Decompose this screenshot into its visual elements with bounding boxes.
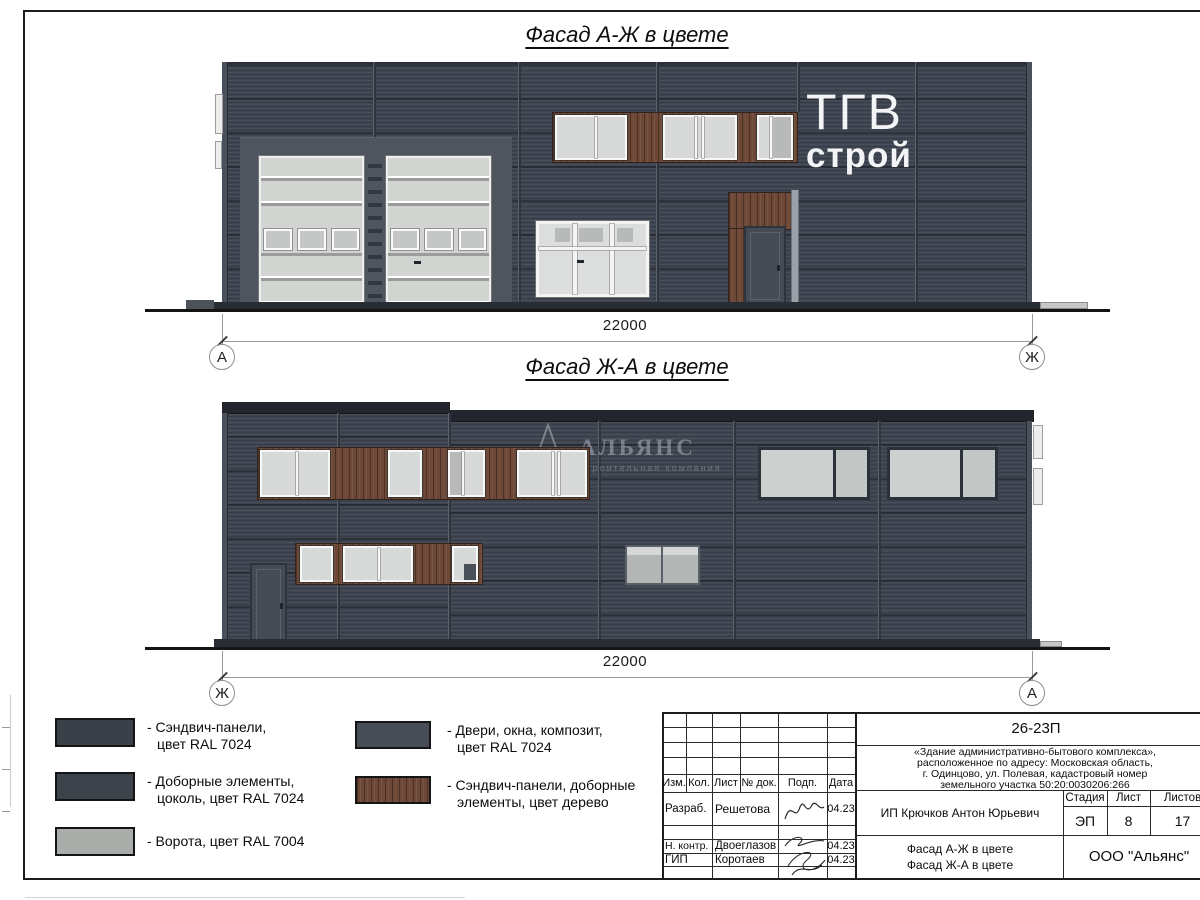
gate-window-row xyxy=(261,226,362,253)
door-panel xyxy=(256,569,281,640)
ramp-left xyxy=(186,300,214,309)
row-date-1: 04.23 xyxy=(827,792,855,825)
band-window-vent xyxy=(452,546,478,582)
titleblock-line xyxy=(662,742,855,743)
entrance-door xyxy=(744,226,786,306)
small-pane xyxy=(836,450,867,497)
pane-divider xyxy=(378,548,380,580)
facade-2-title: Фасад Ж-А в цвете xyxy=(222,354,1032,380)
row-date-3: 04.23 xyxy=(827,853,855,866)
legend-text: цвет RAL 7024 xyxy=(447,739,603,756)
band-window-3 xyxy=(757,115,793,160)
glazed-entrance xyxy=(535,220,650,298)
project-description: «Здание административно-бытового комплек… xyxy=(860,747,1200,791)
company-name: ООО "Альянс" xyxy=(1063,835,1200,878)
facade-2-plinth xyxy=(214,639,1040,647)
legend-text: - Сэндвич-панели, доборные xyxy=(447,777,635,794)
margin-ruler-tick xyxy=(2,727,10,728)
col-header-podp: Подп. xyxy=(778,774,827,792)
door-wood-header xyxy=(728,192,793,230)
band-window-2 xyxy=(663,115,737,160)
company-sign: ТГВ строй xyxy=(806,86,946,174)
legend-swatch-doors xyxy=(355,721,431,749)
legend-swatch-sandwich xyxy=(55,718,135,747)
legend-text: - Сэндвич-панели, xyxy=(147,719,266,736)
legend-text: элементы, цвет дерево xyxy=(447,794,635,811)
top-pane xyxy=(579,228,603,242)
legend-label-trim: - Доборные элементы, цоколь, цвет RAL 70… xyxy=(147,773,304,807)
legend-text: - Ворота, цвет RAL 7004 xyxy=(147,833,304,850)
parapet-strip xyxy=(222,402,450,413)
signature-icon xyxy=(779,832,829,878)
col-header-data: Дата xyxy=(827,774,855,792)
doc-title-line: Фасад А-Ж в цвете xyxy=(907,841,1013,857)
titleblock-line xyxy=(662,825,855,826)
ramp-right xyxy=(1040,302,1088,309)
gate-window xyxy=(332,229,359,250)
door-panel xyxy=(750,232,780,300)
dimension-line-1 xyxy=(222,341,1032,342)
legend-swatch-trim xyxy=(55,772,135,801)
row-name-korotaev: Коротаев xyxy=(712,853,778,866)
frame-bottom xyxy=(23,878,1200,880)
sheet-number: 8 xyxy=(1107,806,1150,835)
wall-fixture xyxy=(215,141,222,169)
band-window xyxy=(448,450,485,497)
sectional-gate-1 xyxy=(258,155,365,305)
project-code: 26-23П xyxy=(857,712,1200,745)
band-window xyxy=(300,546,333,582)
pane-divider xyxy=(296,452,298,495)
gate-window xyxy=(298,229,326,250)
band-window xyxy=(517,450,587,497)
dimension-value-2: 22000 xyxy=(560,653,690,670)
upper-window-right-2 xyxy=(887,447,998,500)
band-window xyxy=(343,546,413,582)
col-header-kol: Кол. xyxy=(686,774,712,792)
panel-seam xyxy=(733,421,736,646)
sign-line-1: ТГВ xyxy=(806,86,946,138)
pane-divider xyxy=(695,117,697,158)
legend-label-wood: - Сэндвич-панели, доборные элементы, цве… xyxy=(447,777,635,811)
gate-window xyxy=(425,229,453,250)
mullion xyxy=(573,224,577,294)
band-window xyxy=(388,450,422,497)
facade-1-drawing: ТГВ строй xyxy=(222,62,1032,308)
gate-window xyxy=(459,229,486,250)
glazing-panes xyxy=(539,224,646,294)
sectional-gate-2 xyxy=(385,155,492,305)
col-header-izm: Изм. xyxy=(662,774,686,792)
small-pane xyxy=(963,450,995,497)
top-pane xyxy=(555,228,570,242)
transom xyxy=(539,247,646,250)
row-name-dvoeglazov: Двоеглазов xyxy=(712,839,778,853)
facade-2-drawing: АЛЬЯНС строительная компания xyxy=(222,402,1032,646)
legend-label-doors: - Двери, окна, композит, цвет RAL 7024 xyxy=(447,722,603,756)
gate-window xyxy=(264,229,292,250)
gates-divider xyxy=(368,155,382,305)
door-handle-icon xyxy=(280,603,283,609)
pane-divider xyxy=(462,452,464,495)
wall-fixture xyxy=(1033,468,1043,505)
door-handle-icon xyxy=(577,260,584,263)
gate-handle-icon xyxy=(414,261,421,264)
legend-text: - Доборные элементы, xyxy=(147,773,304,790)
wall-fixture xyxy=(1033,425,1043,459)
door-handle-icon xyxy=(777,265,780,271)
mullion xyxy=(610,224,614,294)
top-pane xyxy=(617,228,633,242)
legend-text: цвет RAL 7024 xyxy=(147,736,266,753)
dark-pane xyxy=(450,452,462,495)
panel-seam xyxy=(797,62,800,112)
client-name: ИП Крючков Антон Юрьевич xyxy=(857,790,1063,835)
upper-window-right-1 xyxy=(758,447,870,500)
frame-top xyxy=(23,10,1200,12)
titleblock-line xyxy=(662,727,855,728)
doc-title-line: Фасад Ж-А в цвете xyxy=(907,857,1013,873)
row-date-2: 04.23 xyxy=(827,839,855,853)
drawing-sheet: { "facade1": { "title": "Фасад А-Ж в цве… xyxy=(0,0,1200,900)
gates-portal-frame xyxy=(240,137,512,308)
ground-line-2 xyxy=(145,647,1110,650)
sign-line-2: строй xyxy=(806,138,946,174)
col-header-list: Лист xyxy=(712,774,740,792)
watermark-subtitle: строительная компания xyxy=(580,463,722,473)
dimension-line-2 xyxy=(222,677,1032,678)
pane-divider xyxy=(702,117,704,158)
pane-divider xyxy=(552,452,554,495)
margin-ruler-line xyxy=(10,695,11,807)
sheets-label: Листов xyxy=(1150,790,1200,806)
side-door xyxy=(250,563,287,646)
wall-fixture xyxy=(215,94,223,134)
margin-ruler-tick xyxy=(2,769,10,770)
row-role-razrab: Разраб. xyxy=(662,792,712,825)
legend-label-gates: - Ворота, цвет RAL 7004 xyxy=(147,833,304,850)
facade-1-title: Фасад А-Ж в цвете xyxy=(222,22,1032,48)
corner-trim-right xyxy=(1026,62,1032,308)
legend-label-sandwich: - Сэндвич-панели, цвет RAL 7024 xyxy=(147,719,266,753)
panel-seam xyxy=(656,163,659,308)
sheets-total: 17 xyxy=(1150,806,1200,835)
row-name-reshetova: Решетова xyxy=(712,792,778,825)
pane-divider xyxy=(661,547,663,583)
panel-seam xyxy=(373,62,376,137)
doc-title: Фасад А-Ж в цвете Фасад Ж-А в цвете xyxy=(857,835,1063,878)
parapet-strip xyxy=(450,410,1034,421)
door-side-trim xyxy=(791,190,799,306)
col-header-doc: № док. xyxy=(740,774,778,792)
gate-window-row xyxy=(388,226,489,253)
dimension-value-1: 22000 xyxy=(560,317,690,334)
sheet-bottom-edge xyxy=(25,897,465,898)
frame-left xyxy=(23,10,25,880)
legend-text: - Двери, окна, композит, xyxy=(447,722,603,739)
legend-text: цоколь, цвет RAL 7024 xyxy=(147,790,304,807)
panel-seam xyxy=(878,421,881,646)
ground-line-1 xyxy=(145,309,1110,312)
open-vent-pane xyxy=(464,564,476,580)
panel-seam xyxy=(518,62,521,308)
gate-window xyxy=(391,229,419,250)
row-role-nkontr: Н. контр. xyxy=(662,839,712,853)
row-role-gip: ГИП xyxy=(662,853,712,866)
pane-divider xyxy=(595,117,597,158)
legend-swatch-wood xyxy=(355,776,431,804)
signature-icon xyxy=(781,795,827,825)
band-window-1 xyxy=(555,115,627,160)
lower-window-center xyxy=(625,545,700,585)
pane-divider xyxy=(558,452,560,495)
margin-ruler-tick xyxy=(2,811,10,812)
band-window xyxy=(260,450,330,497)
stage-label: Стадия xyxy=(1063,790,1107,806)
stage-value: ЭП xyxy=(1063,806,1107,835)
corner-trim-left xyxy=(222,413,228,646)
legend-swatch-gates xyxy=(55,827,135,856)
corner-trim-right xyxy=(1026,421,1032,646)
titleblock-line xyxy=(662,757,855,758)
panel-seam xyxy=(656,62,659,112)
facade-1-plinth xyxy=(214,302,1040,309)
axis-marker-zh-2: Ж xyxy=(209,680,235,706)
watermark-title: АЛЬЯНС xyxy=(579,435,696,461)
dark-pane xyxy=(772,117,791,158)
sheet-label: Лист xyxy=(1107,790,1150,806)
axis-marker-a-2: А xyxy=(1019,680,1045,706)
